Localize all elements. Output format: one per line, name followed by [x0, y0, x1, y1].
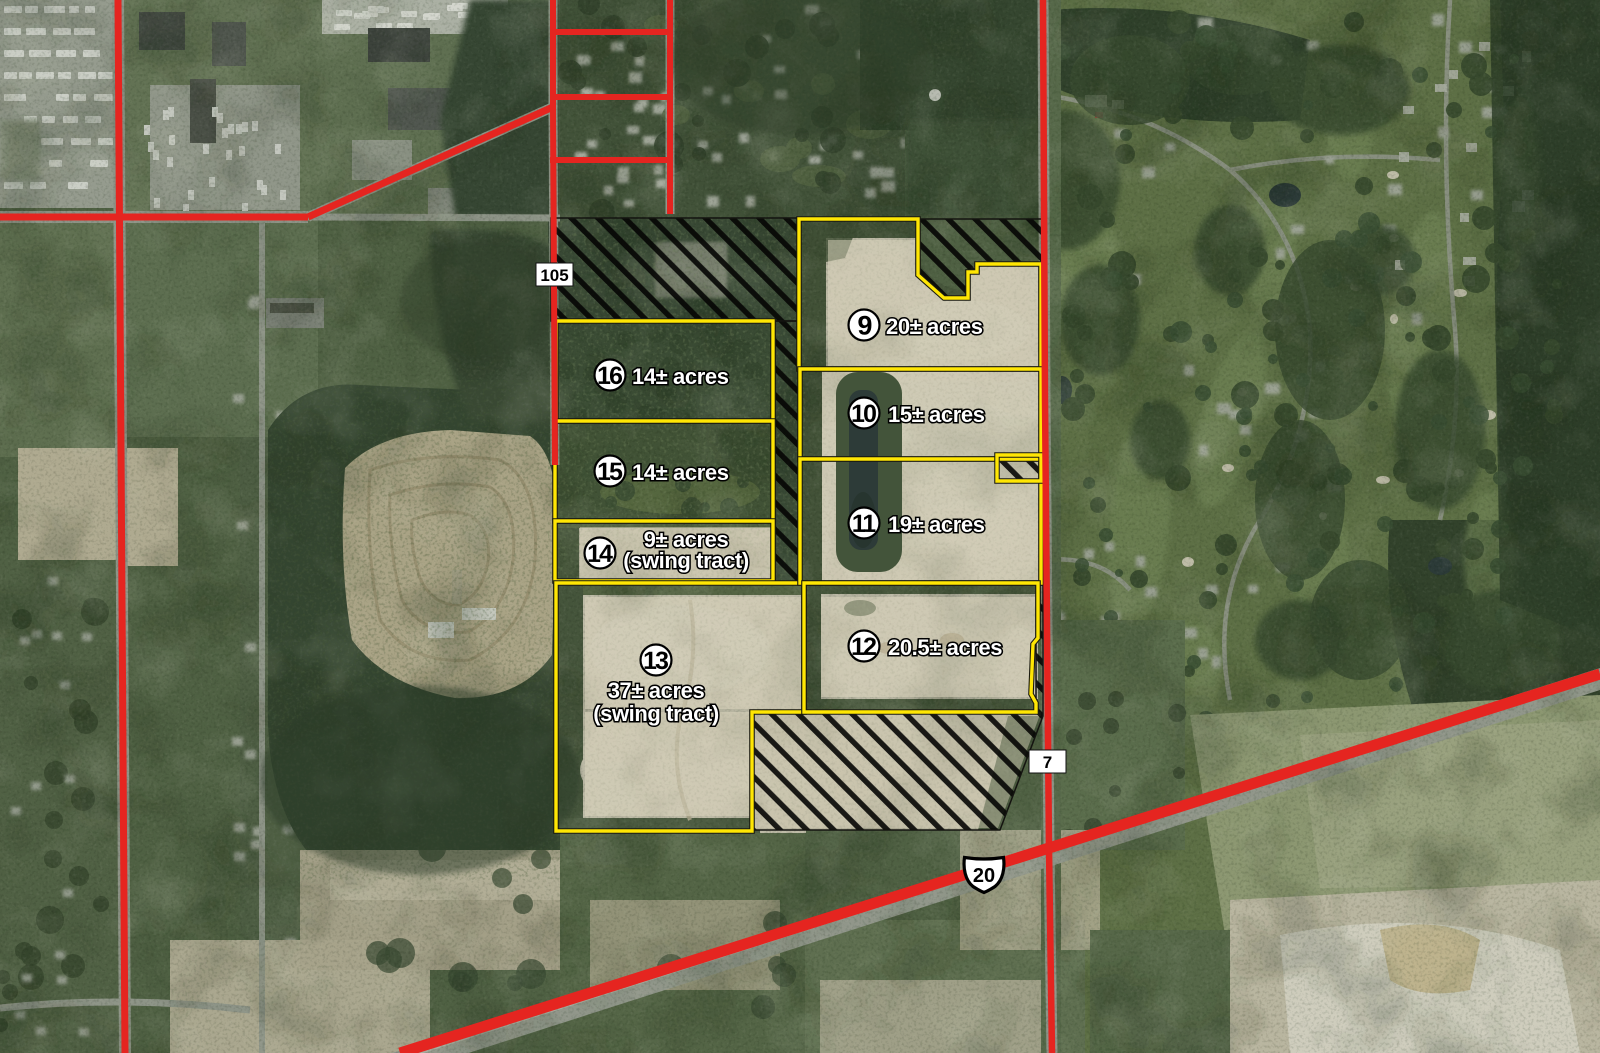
svg-text:14± acres: 14± acres	[632, 460, 729, 485]
svg-text:37± acres: 37± acres	[608, 678, 705, 703]
svg-text:19± acres: 19± acres	[888, 512, 985, 537]
svg-text:14: 14	[587, 540, 613, 568]
svg-text:105: 105	[540, 266, 568, 285]
svg-text:20: 20	[973, 865, 995, 887]
svg-text:20.5± acres: 20.5± acres	[888, 635, 1002, 660]
svg-text:(swing tract): (swing tract)	[623, 548, 749, 573]
svg-text:13: 13	[643, 647, 668, 675]
svg-text:14± acres: 14± acres	[632, 364, 729, 389]
svg-text:15: 15	[597, 458, 623, 486]
svg-text:11: 11	[852, 510, 877, 538]
svg-text:7: 7	[1043, 753, 1052, 772]
svg-text:16: 16	[597, 362, 622, 390]
svg-text:15± acres: 15± acres	[888, 402, 985, 427]
svg-text:(swing tract): (swing tract)	[593, 701, 719, 726]
svg-text:20± acres: 20± acres	[886, 314, 983, 339]
svg-text:10: 10	[851, 400, 876, 428]
svg-text:9: 9	[857, 311, 872, 341]
svg-text:12: 12	[851, 633, 876, 661]
